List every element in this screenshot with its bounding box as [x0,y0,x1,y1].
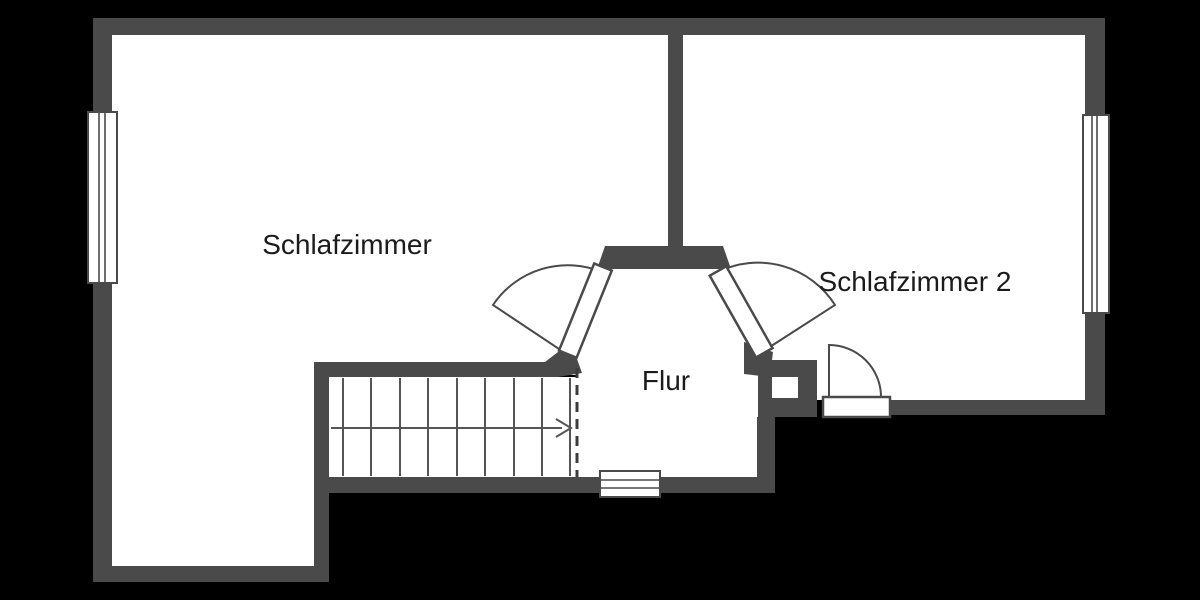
wall-right-upper [1085,18,1105,115]
wall-top [93,18,1105,35]
floorplan-canvas: Schlafzimmer Schlafzimmer 2 Flur [0,0,1200,600]
label-schlafzimmer2: Schlafzimmer 2 [819,266,1012,297]
wall-bottom-middle [314,477,775,493]
door-leaf-small [823,397,890,417]
wall-bottom-left [93,566,329,582]
label-schlafzimmer: Schlafzimmer [262,229,432,260]
wall-stair-left [314,362,329,582]
wall-divider [668,18,683,262]
window-right [1083,115,1109,313]
window-left [88,112,117,283]
wall-flur-top [597,246,731,269]
wall-left-lower [93,283,112,582]
window-flur-bottom [600,471,660,497]
wall-left-upper [93,18,112,112]
wall-right-lower [1085,313,1105,415]
wall-schlafzimmer2-bottom [890,400,1105,415]
chimney-flue [772,377,798,398]
label-flur: Flur [642,365,690,396]
